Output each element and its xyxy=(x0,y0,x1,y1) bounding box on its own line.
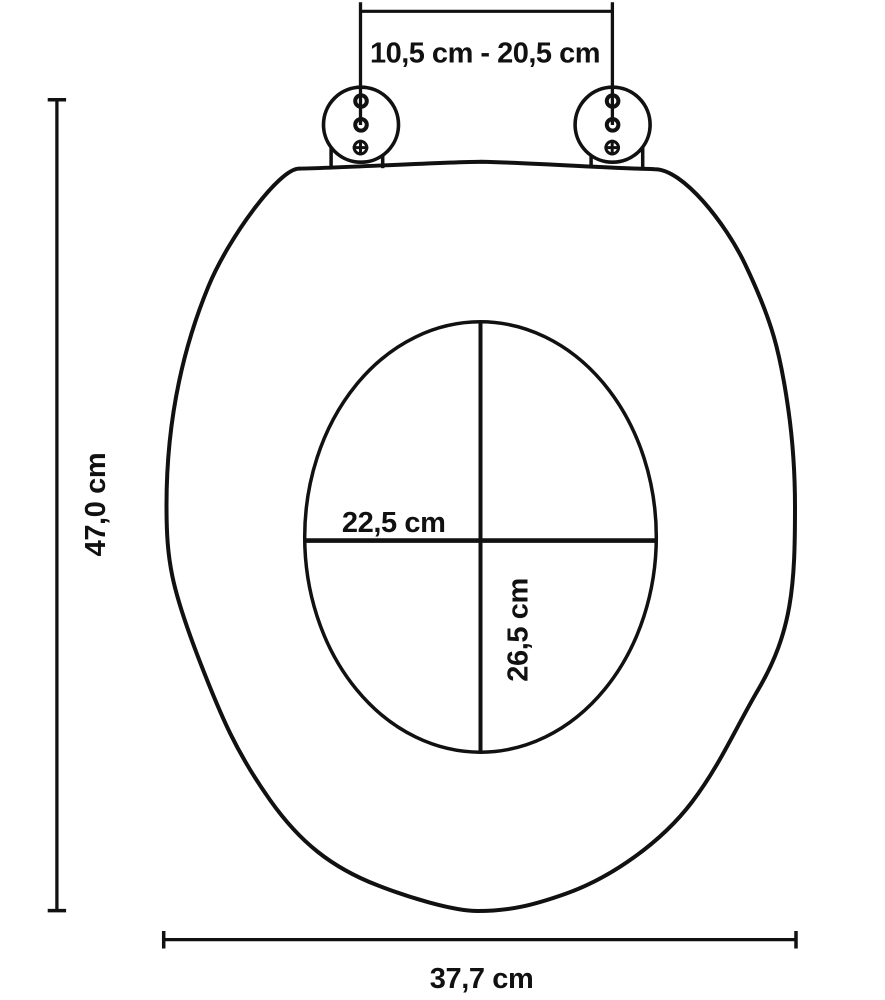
svg-text:22,5 cm: 22,5 cm xyxy=(342,507,446,539)
svg-text:10,5 cm - 20,5 cm: 10,5 cm - 20,5 cm xyxy=(370,37,600,69)
svg-text:26,5 cm: 26,5 cm xyxy=(503,578,535,682)
svg-text:37,7 cm: 37,7 cm xyxy=(430,963,534,995)
svg-text:47,0 cm: 47,0 cm xyxy=(80,453,112,557)
